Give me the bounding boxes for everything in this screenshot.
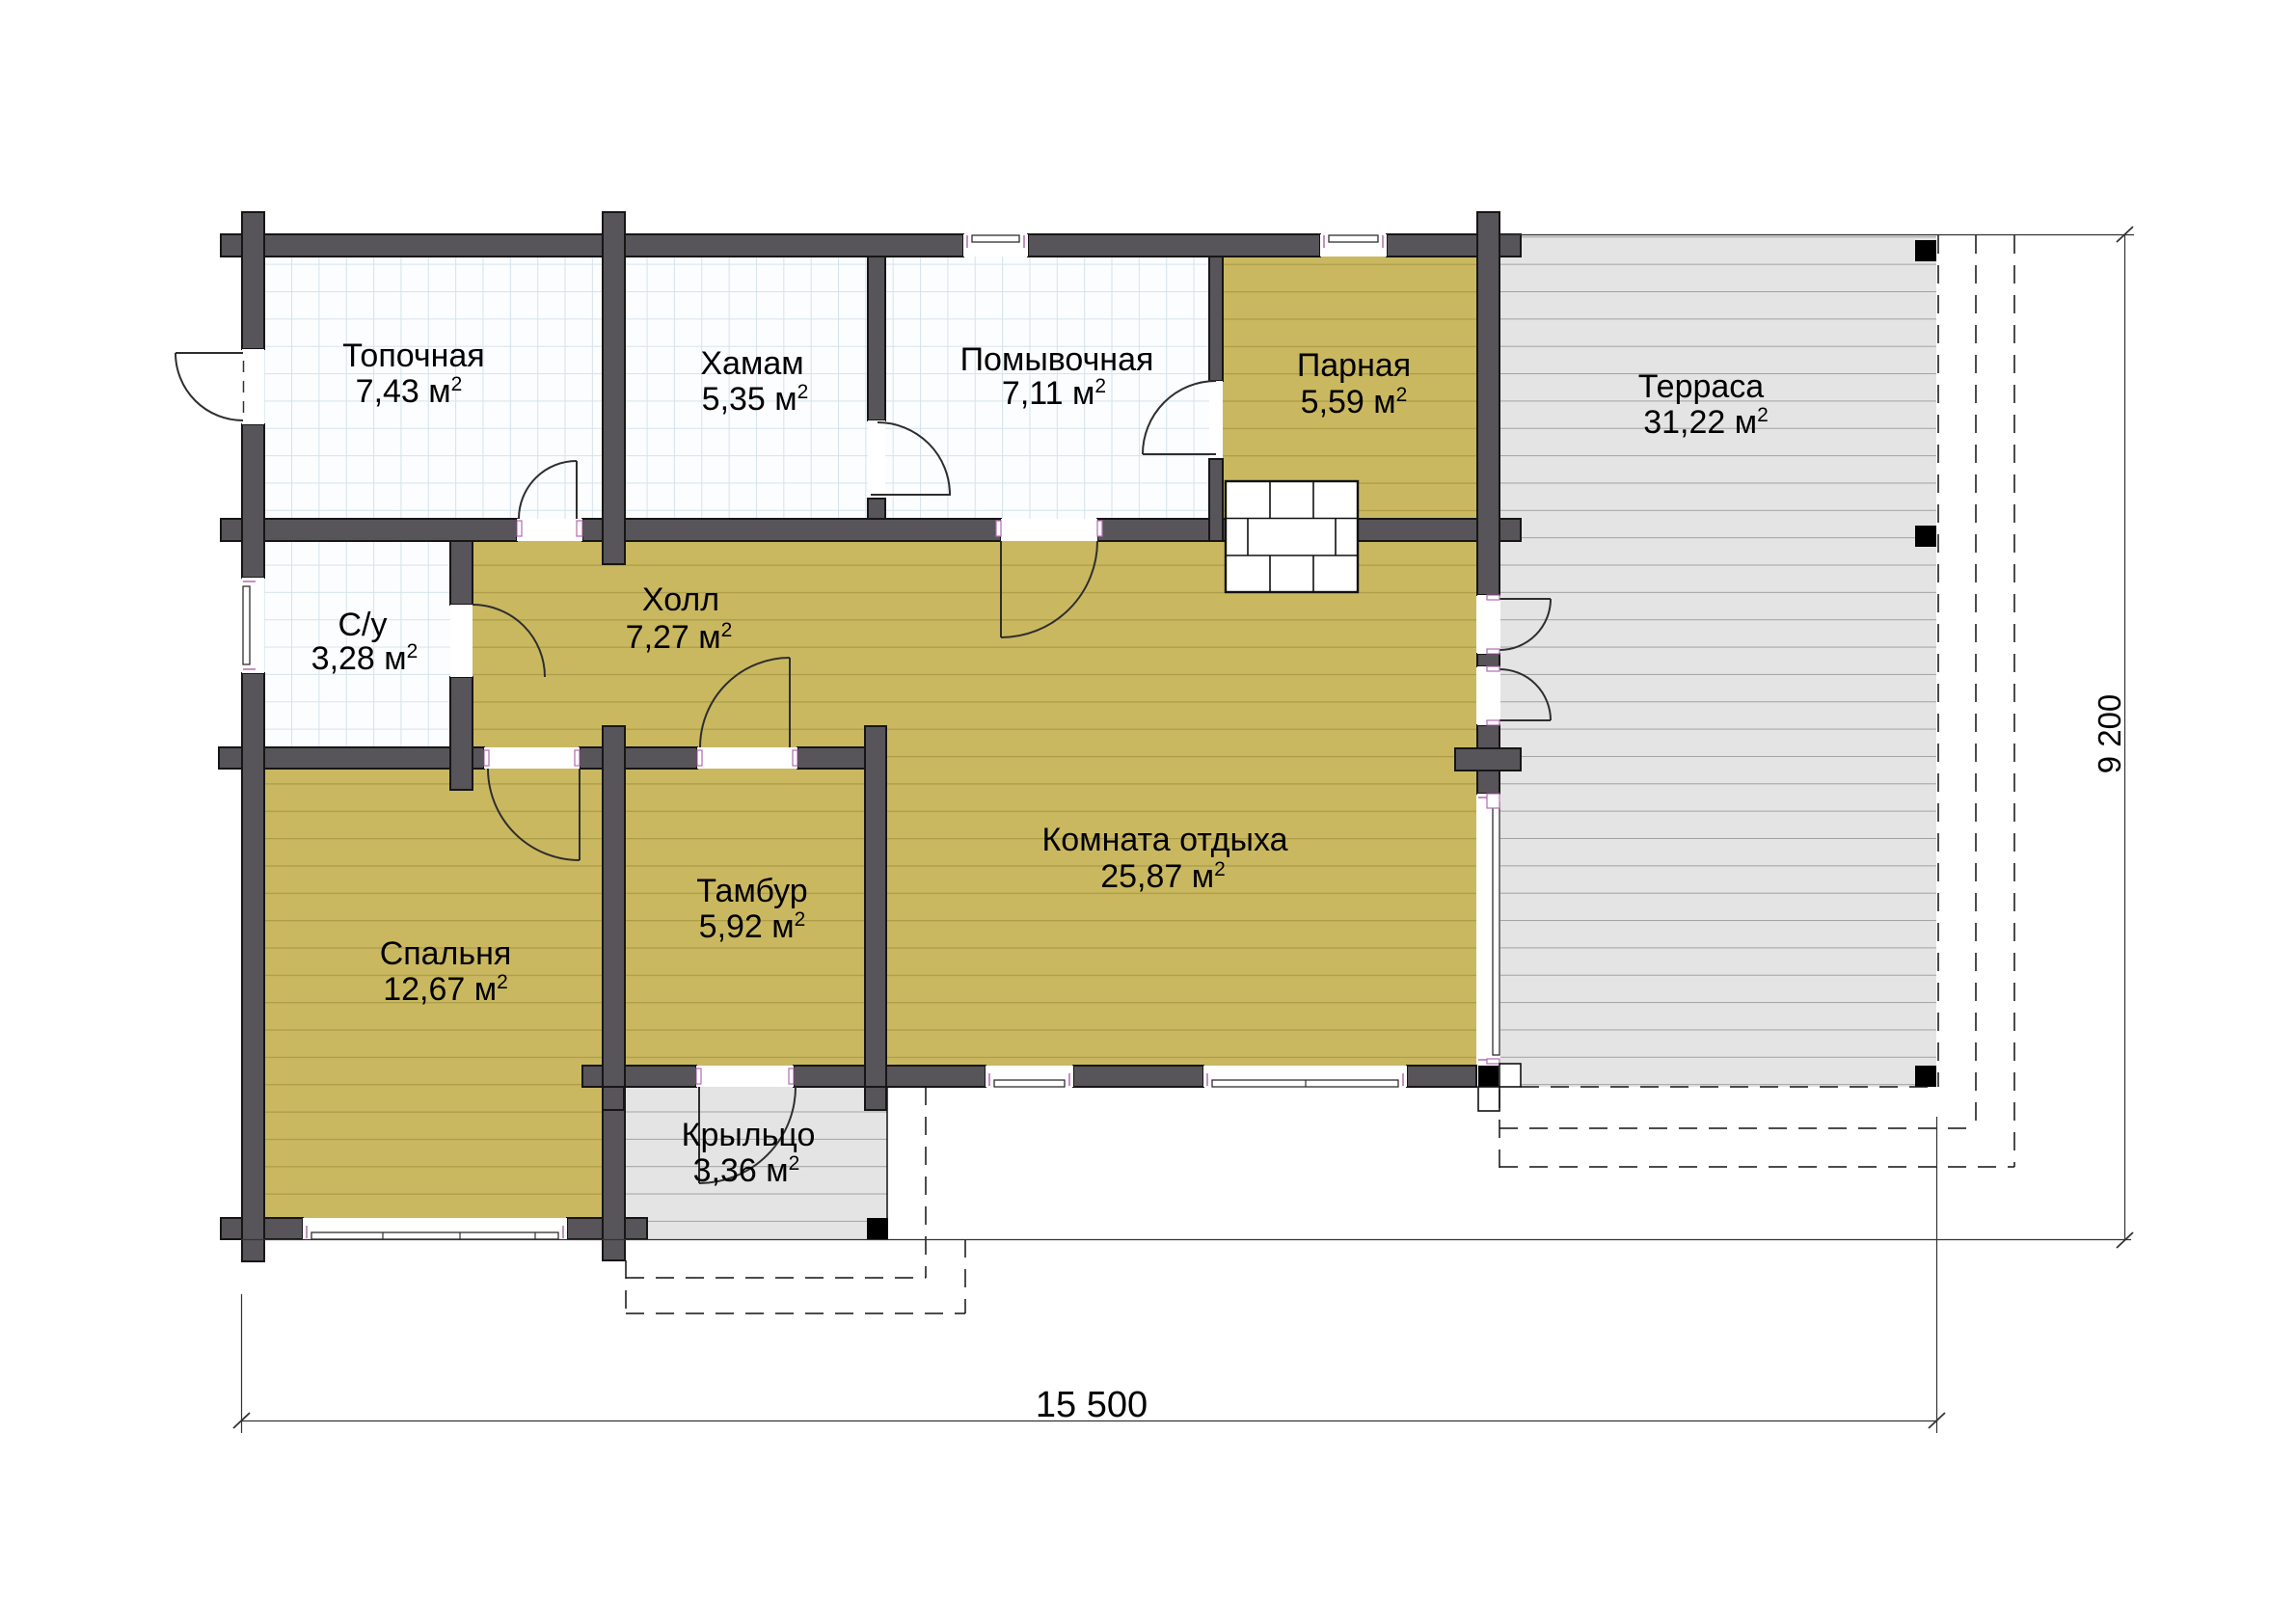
svg-text:С/у: С/у: [338, 607, 388, 643]
svg-text:Комната отдыха: Комната отдыха: [1042, 822, 1288, 858]
svg-text:5,92 м2: 5,92 м2: [699, 908, 806, 945]
svg-text:Спальня: Спальня: [380, 935, 512, 972]
svg-text:7,27 м2: 7,27 м2: [626, 619, 733, 656]
svg-text:7,11 м2: 7,11 м2: [1002, 375, 1106, 412]
svg-text:Холл: Холл: [642, 582, 719, 618]
svg-text:5,35 м2: 5,35 м2: [702, 381, 809, 418]
svg-text:9 200: 9 200: [2092, 694, 2127, 774]
svg-text:Хамам: Хамам: [700, 345, 803, 382]
svg-text:Топочная: Топочная: [342, 338, 484, 374]
svg-text:3,28 м2: 3,28 м2: [311, 640, 419, 677]
svg-text:12,67 м2: 12,67 м2: [383, 971, 508, 1008]
svg-text:25,87 м2: 25,87 м2: [1100, 858, 1226, 895]
svg-text:15 500: 15 500: [1036, 1385, 1148, 1425]
svg-text:31,22 м2: 31,22 м2: [1643, 404, 1769, 441]
svg-text:7,43 м2: 7,43 м2: [356, 373, 463, 410]
svg-text:Крыльцо: Крыльцо: [682, 1117, 816, 1153]
svg-text:5,59 м2: 5,59 м2: [1301, 384, 1408, 420]
svg-text:Тамбур: Тамбур: [696, 873, 807, 909]
svg-text:Помывочная: Помывочная: [960, 341, 1154, 378]
svg-text:3,36 м2: 3,36 м2: [693, 1152, 800, 1189]
svg-text:Терраса: Терраса: [1638, 368, 1764, 405]
svg-text:Парная: Парная: [1297, 347, 1411, 384]
